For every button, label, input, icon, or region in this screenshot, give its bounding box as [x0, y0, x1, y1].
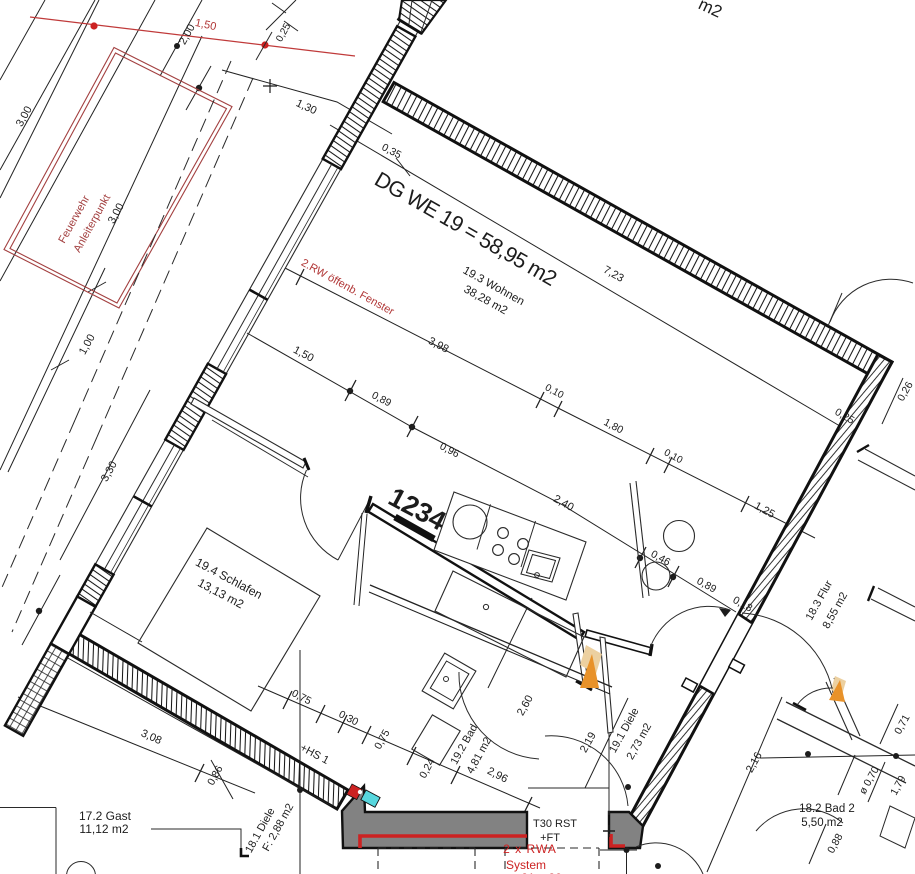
svg-text:T30 RST: T30 RST	[533, 818, 577, 830]
svg-text:17.2 Gast: 17.2 Gast	[79, 809, 132, 823]
svg-text:11,12 m2: 11,12 m2	[79, 822, 128, 836]
svg-text:5,50 m2: 5,50 m2	[801, 817, 843, 829]
svg-text:System: System	[506, 858, 546, 872]
svg-text:18.2 Bad 2: 18.2 Bad 2	[799, 803, 855, 815]
svg-text:2 x RWA: 2 x RWA	[503, 842, 557, 856]
